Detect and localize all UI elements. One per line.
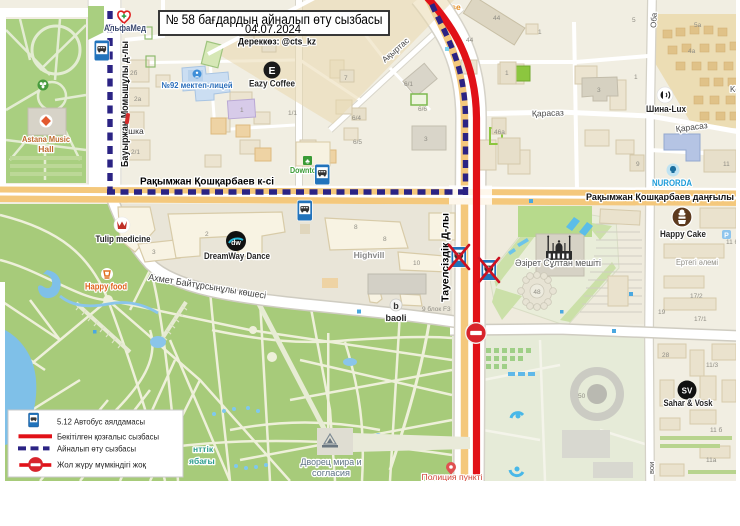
svg-text:3: 3 [597,87,601,94]
svg-text:АльфаМед: АльфаМед [104,23,146,33]
svg-text:P: P [724,233,729,240]
svg-text:2б: 2б [130,69,138,77]
svg-text:1: 1 [538,29,542,36]
svg-text:E: E [268,65,275,77]
svg-text:11: 11 [723,161,730,168]
svg-text:04.07.2024: 04.07.2024 [245,24,302,36]
svg-text:3: 3 [152,249,156,256]
svg-text:4a: 4a [688,48,696,55]
svg-text:Happy Cake: Happy Cake [660,229,706,239]
svg-text:11 б: 11 б [710,426,723,434]
svg-text:Бауыржан Момышұлы д-лы: Бауыржан Момышұлы д-лы [120,41,131,167]
svg-text:1: 1 [634,74,638,81]
svg-text:17/1: 17/1 [694,316,707,323]
svg-text:Бекітілген қозғалыс сызбасы: Бекітілген қозғалыс сызбасы [57,432,159,442]
svg-text:Рақымжан Қошқарбаев к-сі: Рақымжан Қошқарбаев к-сі [140,176,274,188]
svg-text:Eazy Coffee: Eazy Coffee [249,79,295,89]
svg-text:9 блок F3: 9 блок F3 [422,305,451,313]
svg-text:Дворец мира и: Дворец мира и [301,457,362,467]
svg-text:8: 8 [354,224,358,231]
svg-text:согласия: согласия [312,468,350,478]
svg-text:2a: 2a [134,96,142,103]
svg-text:Tulip medicine: Tulip medicine [96,234,151,244]
svg-text:5a: 5a [694,22,702,29]
svg-text:Highvill: Highvill [354,250,385,260]
svg-text:7: 7 [344,75,348,82]
svg-text:Жол жүру мүмкіндігі жоқ: Жол жүру мүмкіндігі жоқ [57,460,146,470]
svg-text:3: 3 [424,136,428,143]
svg-text:28: 28 [662,352,670,359]
svg-text:46a: 46a [494,129,505,136]
svg-text:№92 мектеп-лицей: №92 мектеп-лицей [162,80,233,90]
svg-text:Шина-Lux: Шина-Lux [646,104,686,114]
svg-text:шка: шка [128,126,144,136]
svg-text:NURORDA: NURORDA [652,178,692,189]
svg-text:вои: вои [647,462,656,474]
svg-text:Дереккөз: @cts_kz: Дереккөз: @cts_kz [238,37,316,48]
svg-text:11/3: 11/3 [706,362,719,369]
svg-text:1: 1 [505,70,509,77]
svg-text:6/5: 6/5 [353,139,362,146]
svg-text:44: 44 [493,15,501,22]
svg-text:Sahar & Vosk: Sahar & Vosk [664,398,714,408]
svg-text:ябағы: ябағы [189,456,215,466]
svg-text:Happy food: Happy food [85,282,127,292]
svg-text:Ертегі әлемі: Ертегі әлемі [676,258,718,267]
svg-text:Рақымжан Қошқарбаев даңғылы: Рақымжан Қошқарбаев даңғылы [586,192,734,202]
svg-text:нттік: нттік [193,444,214,454]
svg-text:DreamWay Dance: DreamWay Dance [204,251,270,261]
svg-text:SV: SV [682,387,693,396]
svg-text:Astana Music: Astana Music [22,134,70,144]
svg-text:5.12 Автобус аялдамасы: 5.12 Автобус аялдамасы [57,417,145,427]
svg-text:5: 5 [632,17,636,24]
svg-text:19: 19 [658,309,666,316]
svg-text:11a: 11a [706,457,717,464]
svg-text:17/2: 17/2 [690,293,703,300]
svg-text:10: 10 [413,260,421,267]
svg-text:Hall: Hall [38,144,54,154]
svg-text:44: 44 [466,37,474,44]
svg-text:48: 48 [533,289,541,296]
svg-text:50: 50 [578,393,586,400]
svg-text:6/4: 6/4 [352,115,361,122]
svg-text:Қарасаз: Қарасаз [532,107,564,118]
svg-text:Оба: Оба [649,12,659,28]
svg-text:9: 9 [636,161,640,168]
svg-text:1/1: 1/1 [288,110,297,117]
svg-text:1: 1 [240,107,244,114]
svg-text:baoli: baoli [385,313,406,323]
svg-text:b: b [393,301,399,311]
svg-text:8: 8 [383,236,387,243]
svg-text:6/6: 6/6 [418,106,427,113]
svg-text:dw: dw [231,240,241,247]
svg-text:Әзірет Сұлтан мешіті: Әзірет Сұлтан мешіті [515,258,601,268]
svg-text:Айналып өту сызбасы: Айналып өту сызбасы [57,444,136,454]
svg-text:Тауелсіздік Д-лы: Тауелсіздік Д-лы [441,213,452,302]
svg-text:2: 2 [205,231,209,238]
svg-text:2/1: 2/1 [131,149,140,156]
svg-text:6/1: 6/1 [404,81,413,88]
